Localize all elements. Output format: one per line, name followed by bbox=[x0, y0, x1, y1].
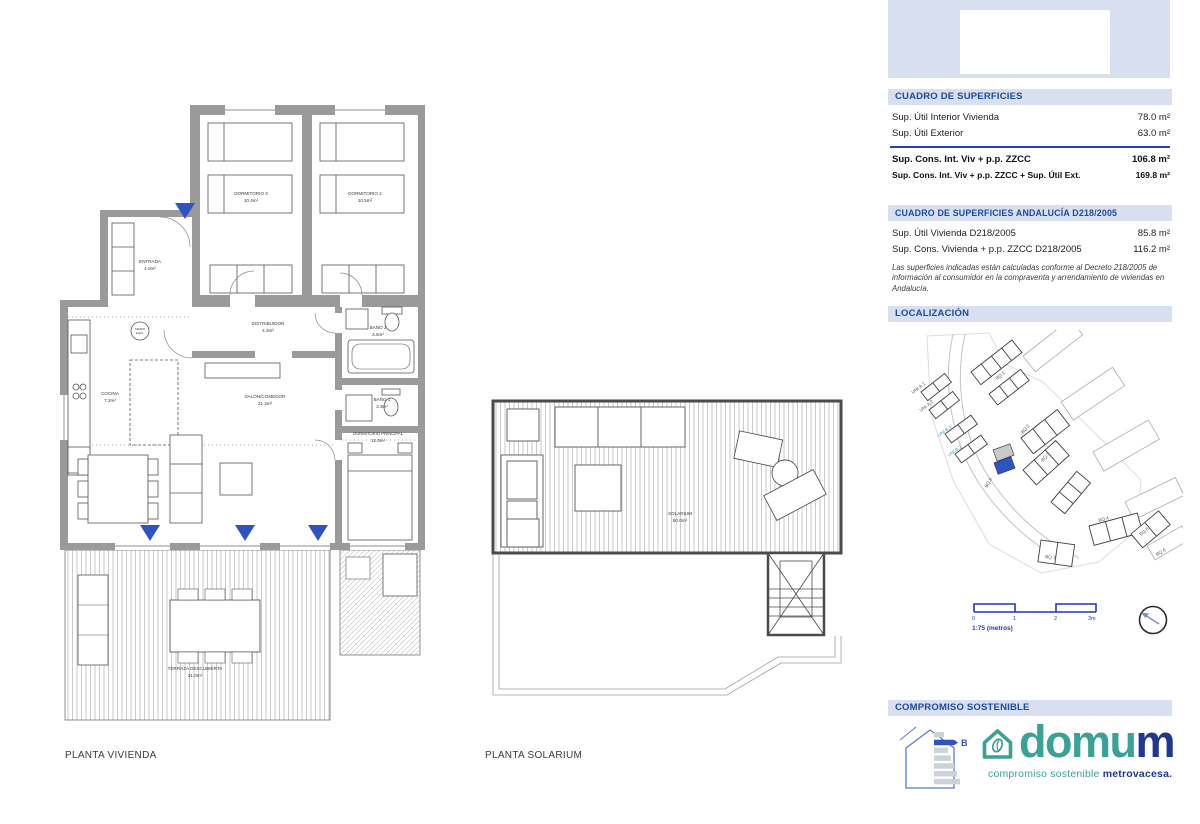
domum-wordmark: domum bbox=[1019, 718, 1174, 766]
domum-logo: domum bbox=[978, 718, 1174, 770]
section-title-andalucia: CUADRO DE SUPERFICIES ANDALUCÍA D218/200… bbox=[888, 205, 1172, 221]
andalucia-row: Sup. Útil Vivienda D218/2005 85.8 m² bbox=[890, 226, 1172, 241]
room-label-principal: DORMITORIO PRINCIPAL bbox=[353, 431, 404, 436]
svg-text:2: 2 bbox=[1054, 616, 1057, 622]
superficies-row: Sup. Útil Interior Vivienda 78.0 m² bbox=[890, 110, 1172, 125]
room-label-cocina: COCINA bbox=[101, 391, 120, 396]
solarium-deck: SOLARIUM 50.0m² bbox=[493, 401, 841, 553]
section-title-compromiso: COMPROMISO SOSTENIBLE bbox=[888, 700, 1172, 716]
plan-sheet: DORMITORIO 3 10.4m² DORMITORIO 2 10.5m² … bbox=[0, 0, 1200, 824]
caption-planta-solarium: PLANTA SOLARIUM bbox=[485, 750, 582, 761]
andalucia-row: Sup. Cons. Vivienda + p.p. ZZCC D218/200… bbox=[890, 242, 1172, 257]
svg-text:4.3m²: 4.3m² bbox=[262, 328, 274, 333]
room-label-salon: SALÓN/COMEDOR bbox=[245, 393, 287, 399]
section-title-superficies: CUADRO DE SUPERFICIES bbox=[888, 89, 1172, 105]
north-arrow-icon bbox=[1135, 602, 1171, 638]
superficies-total-row: Sup. Cons. Int. Viv + p.p. ZZCC 106.8 m² bbox=[890, 152, 1172, 167]
svg-text:12.0m²: 12.0m² bbox=[371, 438, 386, 443]
scale-bar: 0 1 2 3m 1:75 (metros) bbox=[970, 596, 1100, 636]
superficies-total-row: Sup. Cons. Int. Viv + p.p. ZZCC + Sup. Ú… bbox=[890, 168, 1172, 183]
room-label-entrada: ENTRADA bbox=[139, 259, 162, 264]
svg-text:7.2m²: 7.2m² bbox=[104, 398, 116, 403]
section-title-localizacion: LOCALIZACIÓN bbox=[888, 306, 1172, 322]
svg-text:3.3m²: 3.3m² bbox=[376, 404, 388, 409]
room-label-bano1: BAÑO 1 bbox=[374, 396, 391, 402]
svg-text:3m: 3m bbox=[1088, 616, 1096, 622]
room-label-distribuidor: DISTRIBUIDOR bbox=[252, 321, 286, 326]
domum-tagline: compromiso sostenible metrovacesa. bbox=[988, 768, 1172, 780]
floorplan-vivienda: DORMITORIO 3 10.4m² DORMITORIO 2 10.5m² … bbox=[30, 95, 430, 745]
room-label-terraza: TERRAZA DESCUBIERTA bbox=[168, 666, 224, 671]
logo-placeholder bbox=[960, 10, 1110, 74]
terraza-deck bbox=[65, 550, 420, 720]
svg-text:1: 1 bbox=[1013, 616, 1016, 622]
svg-text:10.5m²: 10.5m² bbox=[358, 198, 373, 203]
andalucia-note: Las superficies indicadas están calculad… bbox=[892, 263, 1170, 294]
domum-house-icon bbox=[978, 718, 1017, 770]
svg-text:3.5m²: 3.5m² bbox=[372, 332, 384, 337]
stairwell bbox=[768, 553, 824, 635]
svg-text:21.4m²: 21.4m² bbox=[258, 401, 273, 406]
energy-rating-icon: B bbox=[896, 722, 974, 792]
location-map: BQ.1 BQ.2 BQ.3 BQ.4 BQ.5 BQ.6 BQ.7 BQ.8 … bbox=[893, 330, 1183, 580]
svg-text:ELEC.: ELEC. bbox=[136, 331, 144, 335]
energy-rating-letter: B bbox=[961, 738, 968, 748]
scale-caption: 1:75 (metros) bbox=[972, 625, 1013, 632]
superficies-row: Sup. Útil Exterior 63.0 m² bbox=[890, 126, 1172, 141]
caption-planta-vivienda: PLANTA VIVIENDA bbox=[65, 750, 157, 761]
svg-text:0: 0 bbox=[972, 616, 975, 622]
room-label-dormitorio3: DORMITORIO 3 bbox=[234, 191, 268, 196]
svg-text:31.0m²: 31.0m² bbox=[188, 673, 203, 678]
room-label-solarium: SOLARIUM bbox=[668, 511, 692, 516]
blue-divider bbox=[890, 146, 1170, 148]
room-label-dormitorio2: DORMITORIO 2 bbox=[348, 191, 382, 196]
svg-text:50.0m²: 50.0m² bbox=[673, 518, 688, 523]
room-label-bano2: BAÑO 2 bbox=[370, 324, 387, 330]
svg-text:10.4m²: 10.4m² bbox=[244, 198, 259, 203]
floorplan-solarium: SOLARIUM 50.0m² bbox=[485, 393, 855, 738]
svg-text:4.0m²: 4.0m² bbox=[144, 266, 156, 271]
